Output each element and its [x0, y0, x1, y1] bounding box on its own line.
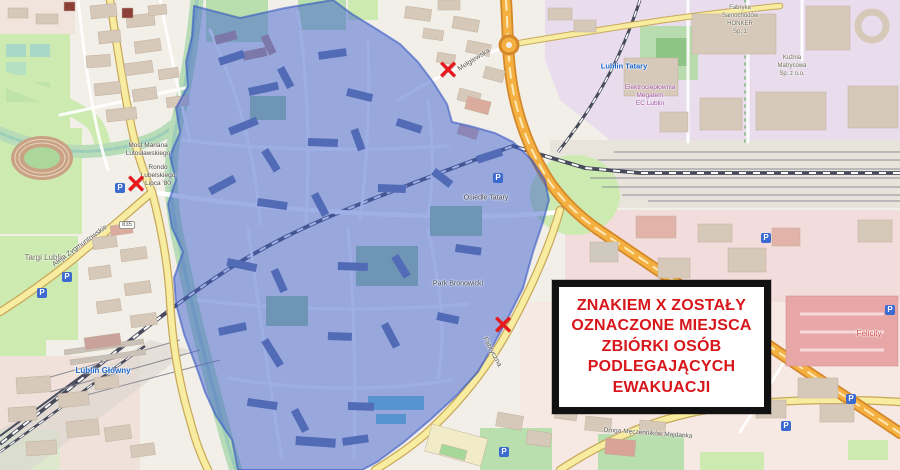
map-label: Lipca '80	[145, 181, 171, 188]
map-label: Aleja Zygmuntowskie	[51, 224, 109, 269]
evacuation-notice-box: ZNAKIEM X ZOSTAŁYOZNACZONE MIEJSCAZBIÓRK…	[552, 280, 771, 414]
parking-icon: P	[37, 288, 47, 298]
evacuation-x-marker: ✕	[493, 314, 514, 339]
evacuation-x-marker: ✕	[438, 59, 459, 84]
map-label: EC Lublin	[636, 101, 664, 108]
map-label: Lublin Tatary	[601, 62, 648, 70]
parking-icon: P	[499, 447, 509, 457]
map-image: Targi LublinLublin GłównyLublin TataryFe…	[0, 0, 900, 470]
map-label: Mełgiewska	[457, 47, 492, 72]
map-label: Droga Męczenników Majdanka	[603, 428, 692, 441]
parking-icon: P	[761, 233, 771, 243]
map-label: Elektrociepłownia	[625, 85, 676, 92]
map-label: Most Mariana	[128, 143, 167, 150]
notice-line: OZNACZONE MIEJSCA	[559, 316, 764, 337]
map-label: Felicity	[857, 330, 882, 338]
map-label: Rondo	[148, 165, 167, 172]
map-label: Megatem	[636, 93, 663, 100]
parking-icon: P	[493, 173, 503, 183]
notice-line: ZNAKIEM X ZOSTAŁY	[559, 296, 764, 317]
map-label: Park Bronowicki	[433, 281, 483, 288]
notice-line: PODLEGAJĄCYCH	[559, 357, 764, 378]
map-label: HONKER	[727, 21, 753, 27]
parking-icon: P	[846, 394, 856, 404]
map-label: Fabryka	[729, 5, 751, 11]
notice-text: ZNAKIEM X ZOSTAŁYOZNACZONE MIEJSCAZBIÓRK…	[559, 296, 764, 399]
parking-icon: P	[781, 421, 791, 431]
evacuation-x-marker: ✕	[126, 173, 147, 198]
parking-icon: P	[62, 272, 72, 282]
map-label: Lutosławskiego	[126, 151, 170, 158]
road-shield: 835	[119, 221, 135, 229]
parking-icon: P	[885, 305, 895, 315]
map-label: Matrycowa	[777, 63, 806, 69]
parking-icon: P	[115, 183, 125, 193]
map-label: Osiedle Tatary	[464, 195, 509, 202]
notice-line: EWAKUACJI	[559, 378, 764, 399]
map-label: Sp. z o.o.	[779, 71, 804, 77]
map-label: Sp. 1	[733, 29, 747, 35]
notice-line: ZBIÓRKI OSÓB	[559, 337, 764, 358]
map-label: Lublin Główny	[75, 367, 130, 375]
map-label: Fabryczna	[481, 336, 503, 368]
map-label: Samochodów	[722, 13, 758, 19]
map-label: Kuźnia	[783, 55, 801, 61]
